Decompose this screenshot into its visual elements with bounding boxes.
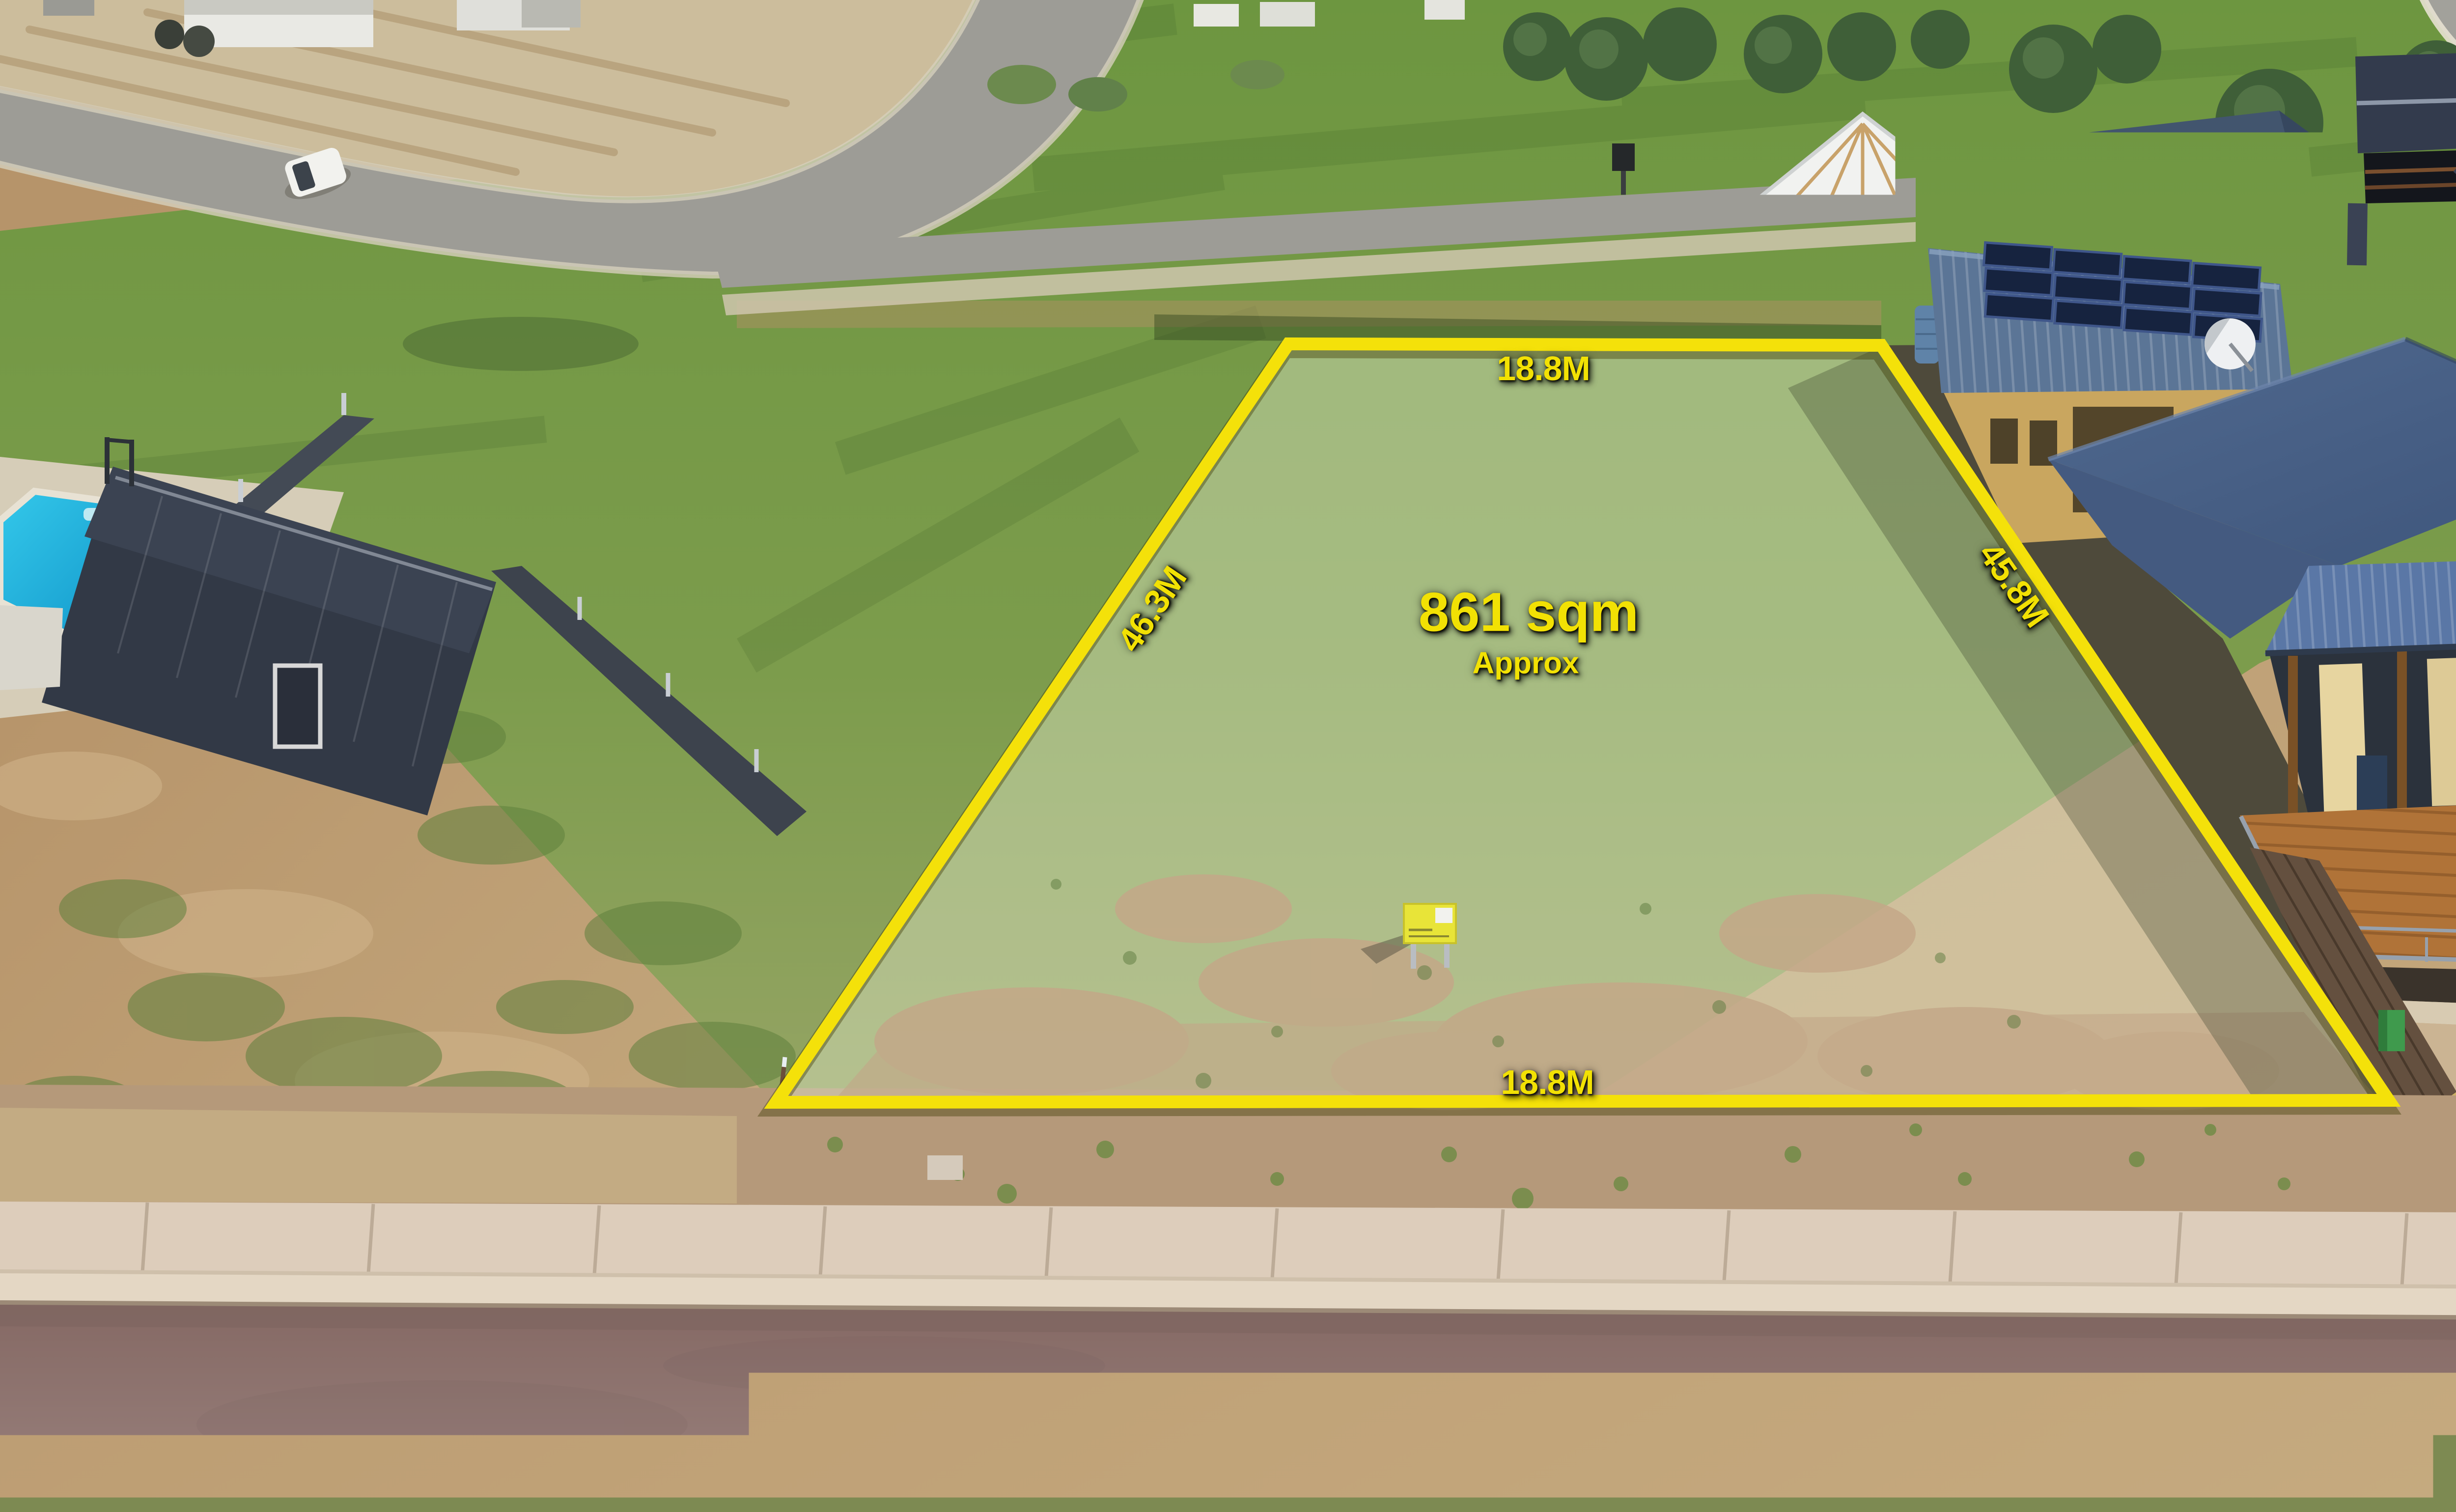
utility-pit (927, 1155, 963, 1180)
aerial-photo: 18.8M 46.3M 45.8M 18.8M 861 sqm Approx O… (0, 0, 2456, 1512)
street-frontage (0, 1085, 2456, 1512)
scene-graphic (0, 0, 2456, 1512)
